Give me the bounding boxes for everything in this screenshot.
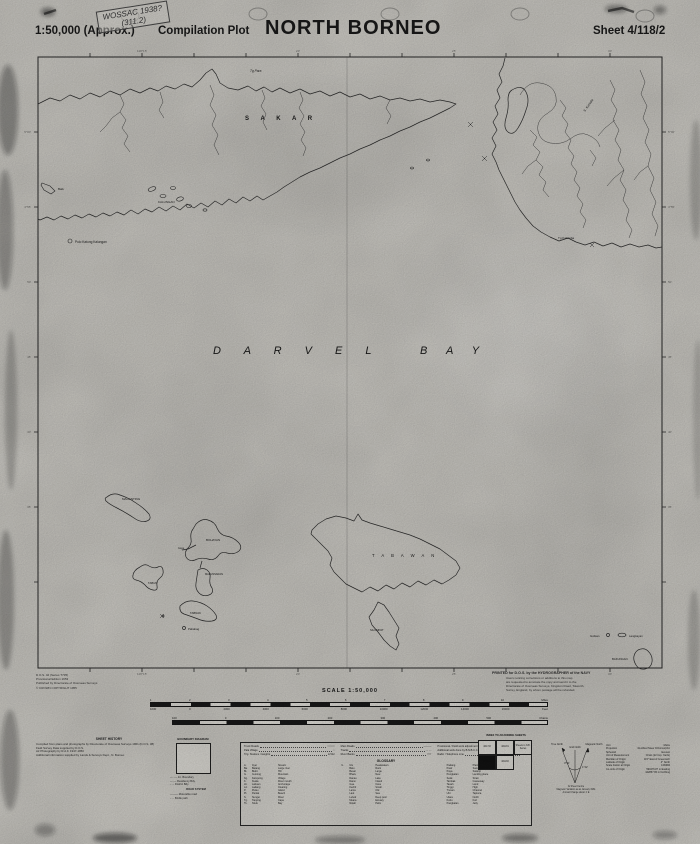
feet-ticks: 1000020004000600080001000012000140001600… [150, 707, 548, 711]
tick-label: 200 [328, 716, 333, 720]
label-darvel: D A R V E L [213, 345, 381, 357]
islands-south [105, 494, 652, 669]
tick-label: 1000 [150, 707, 156, 711]
tick-label: 0 [189, 707, 191, 711]
compass-note: Annual Change about 1' E [540, 792, 612, 795]
tick-label: 6 [345, 698, 347, 702]
island-silumpat [369, 602, 399, 650]
svg-text:35': 35' [668, 505, 672, 509]
tick-label: 14000 [461, 707, 469, 711]
svg-text:40': 40' [668, 430, 672, 434]
svg-text:Magnetic North: Magnetic North [586, 743, 604, 746]
tick-label: 4 [267, 698, 269, 702]
tick-label: Chains [539, 716, 548, 720]
scalebar-chains: 1000100200300400500Chains [172, 716, 548, 725]
tick-label: 300 [381, 716, 386, 720]
boundary-diagram-title: BOUNDARY DIAGRAM [168, 737, 218, 741]
label-malunsaran: MALUNSARAN [205, 572, 223, 576]
symbol-row: Trig. Stations / HeightsΔ 512 [244, 753, 335, 757]
svg-text:4°55': 4°55' [24, 205, 31, 209]
tick-label: 7 [384, 698, 386, 702]
tick-label: 3 [228, 698, 230, 702]
reef-marks [160, 122, 594, 618]
label-gaya: Gaya [178, 547, 185, 550]
scale-caption: SCALE 1:50,000 [0, 688, 700, 694]
tick-label: 16000 [502, 707, 510, 711]
svg-text:50': 50' [27, 280, 31, 284]
glossary-entry: Tk.TelokBay [244, 802, 333, 805]
imprint-line: Published by Directorate of Overseas Sur… [36, 681, 97, 685]
svg-text:118°15': 118°15' [137, 672, 147, 676]
island-malunsaran [196, 561, 213, 596]
glossary-entry: NipahPalm [341, 802, 430, 805]
svg-text:25': 25' [452, 49, 456, 53]
label-tabnak: TABNAK [190, 611, 201, 615]
tick-label: 2 [189, 698, 191, 702]
svg-text:1°42': 1°42' [582, 766, 588, 769]
island-bakungan [634, 649, 652, 669]
label-tabawan: T A B A W A N [372, 553, 437, 558]
tick-label: 0 [225, 716, 227, 720]
label-tabun: TABUN [148, 581, 157, 585]
sheet-history-line: Additional information supplied by Lands… [36, 754, 182, 758]
scalebar-bar [172, 720, 548, 725]
boundary-item: - - - District Bdy. [170, 783, 222, 787]
tick-label: 500 [486, 716, 491, 720]
road-system-title: ROAD SYSTEM [170, 788, 222, 792]
true-north-star-icon [562, 748, 565, 752]
scanned-map-sheet: { "header": { "scale": "1:50,000 (Approx… [0, 0, 700, 844]
svg-text:45': 45' [27, 355, 31, 359]
svg-text:40': 40' [27, 430, 31, 434]
sheet-history: SHEET HISTORY Compiled from plans and ph… [36, 738, 182, 758]
boundary-legend: —··— Int. Boundary—·— Residency Bdy.- - … [170, 776, 222, 800]
sheet-title: NORTH BORNEO [265, 17, 441, 40]
compass-notes: At Sheet CentreMagnetic Variation as at … [540, 786, 612, 795]
symbol-row: River Banks≈≈≈ [341, 753, 432, 757]
tick-label: 8 [423, 698, 425, 702]
index-title: INDEX TO ADJOINING SHEETS [476, 734, 536, 737]
svg-text:25': 25' [452, 672, 456, 676]
road-item: - - - Bridle path [170, 797, 222, 801]
glossary-grid: A.AyerStreamBa.BatangLarge riverBt.Bukit… [244, 764, 528, 805]
scalebar-miles-feet: 12345678910Miles 10000200040006000800010… [150, 698, 548, 711]
tick-label: 4000 [263, 707, 269, 711]
plot-type: Compilation Plot [158, 25, 249, 37]
svg-text:0°51': 0°51' [564, 762, 570, 765]
graticule-labels: 118°15' 20' 25' 30' 118°15' 20' 25' 30' … [24, 49, 675, 676]
label-maganting: MAGANTING [122, 497, 141, 501]
graticule-ticks [34, 53, 666, 672]
svg-text:45': 45' [668, 355, 672, 359]
tick-label: 9 [462, 698, 464, 702]
tick-label: 100 [275, 716, 280, 720]
tick-label: 10000 [380, 707, 388, 711]
sheet-number: Sheet 4/118/2 [593, 25, 665, 37]
island-tabun [133, 565, 163, 590]
label-gulisan: Gulisan [590, 634, 600, 638]
label-langkayan: Langkayan [629, 634, 643, 638]
coastline-mainland [492, 58, 662, 248]
tick-label: 100 [172, 716, 177, 720]
tick-label: Feet [542, 707, 548, 711]
tick-label: 8000 [341, 707, 347, 711]
tick-label: 5 [306, 698, 308, 702]
svg-text:5°00': 5°00' [668, 130, 675, 134]
label-pulo-katung: Pulo Katung Kalungan [75, 240, 107, 244]
label-kalungan: KALUNGAN [158, 200, 175, 204]
tick-label: 12000 [420, 707, 428, 711]
index-cell: 4/118/1 [496, 740, 514, 755]
index-cell: 4/118/2 [496, 755, 514, 770]
glossary-entry: PangkalanJetty [439, 802, 528, 805]
tick-label: Miles [541, 698, 548, 702]
index-cell: Sheets in N.B. Series [514, 740, 532, 755]
label-s-kumala: S. Kumala [583, 98, 595, 113]
index-grid: 4/117/24/118/1Sheets in N.B. Series4/117… [478, 740, 532, 770]
printed-note-title: PRINTED for D.O.S. by the HYDROGRAPHER o… [492, 671, 668, 675]
projection-row: 442857.65 m Northing [606, 771, 670, 774]
tick-label: 6000 [302, 707, 308, 711]
label-bay: B A Y [420, 345, 487, 357]
index-cell: 4/117/2 [478, 740, 496, 755]
rivers-mainland [520, 70, 658, 238]
label-tg-para: Tg Para [250, 69, 262, 73]
compass-labels: Grid North True North Magnetic North 0°5… [551, 743, 603, 769]
tick-label: 1 [150, 698, 152, 702]
tick-label: 10 [501, 698, 504, 702]
map-labels: S A K A R Tg Para KALUNGAN Pulo Katung K… [58, 69, 643, 661]
projection-table: UnitMetreProjectionRectified Skew Orthom… [606, 744, 670, 775]
tick-label: 400 [433, 716, 438, 720]
svg-text:30': 30' [608, 49, 612, 53]
tick-label: 2000 [223, 707, 229, 711]
index-cell: 4/117/4 [478, 755, 496, 770]
svg-text:35': 35' [27, 505, 31, 509]
svg-text:118°15': 118°15' [137, 49, 147, 53]
label-tg-kalumba: Tg Kalumba [558, 236, 575, 240]
svg-text:20': 20' [296, 49, 300, 53]
svg-text:5°00': 5°00' [24, 130, 31, 134]
svg-text:50': 50' [668, 280, 672, 284]
svg-text:4°55': 4°55' [668, 205, 675, 209]
coastline-sakar [38, 69, 456, 220]
label-silumpat: SILUMPAT [370, 628, 384, 632]
svg-text:Grid North: Grid North [569, 746, 581, 749]
label-baik: Baik [58, 187, 64, 191]
label-bakungan: BAKUNGAN [612, 657, 628, 661]
islets-kalungan [41, 159, 430, 243]
magnetic-north-arrow-icon [586, 748, 589, 752]
boundary-diagram-box [176, 743, 211, 774]
label-sakar: S A K A R [245, 116, 317, 122]
svg-text:True North: True North [551, 743, 563, 746]
label-bohayan: BOHAYAN [206, 538, 220, 542]
svg-text:20': 20' [296, 672, 300, 676]
label-pababag: Pababag [188, 627, 200, 631]
